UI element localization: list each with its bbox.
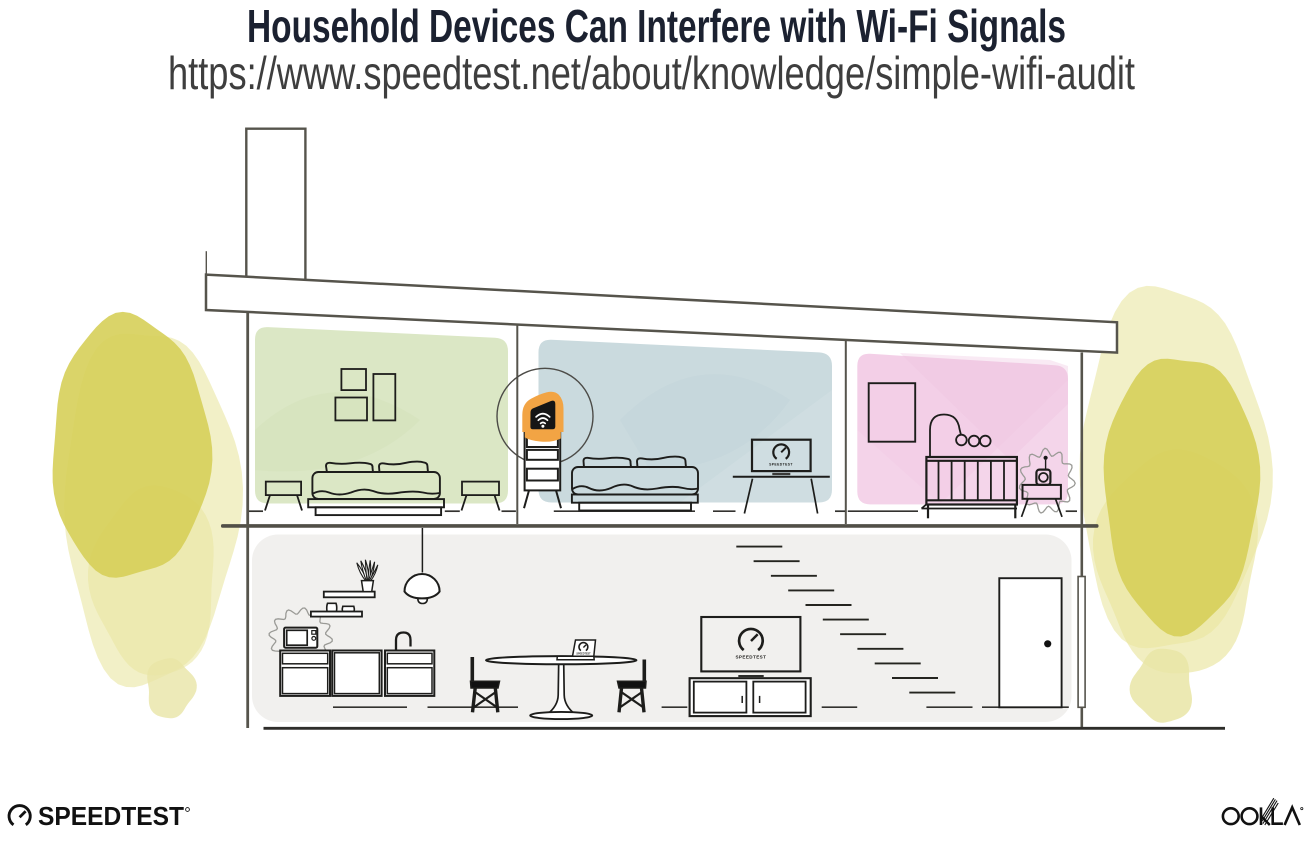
svg-text:https://www.speedtest.net/abou: https://www.speedtest.net/about/knowledg… [168,47,1135,99]
svg-text:SPEEDTEST: SPEEDTEST [735,654,766,659]
svg-text:SPEEDTEST: SPEEDTEST [38,803,184,831]
svg-text:SPEEDTEST: SPEEDTEST [769,462,793,466]
svg-text:Household Devices Can Interfer: Household Devices Can Interfere with Wi-… [247,0,1066,52]
svg-text:SPEEDTEST: SPEEDTEST [576,653,591,656]
